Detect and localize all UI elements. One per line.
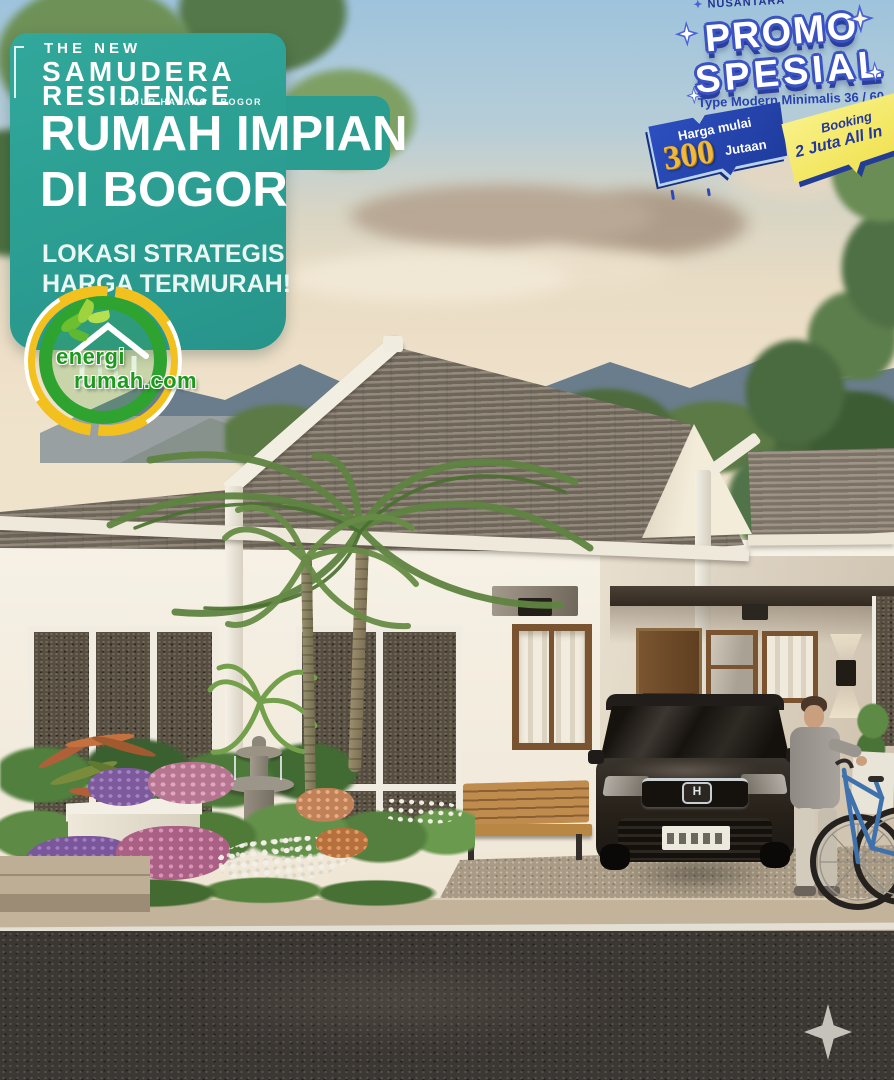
- water-stream: [234, 756, 236, 780]
- leaf: [67, 326, 89, 343]
- palm-frond: [305, 550, 416, 584]
- bike-seat: [868, 776, 884, 782]
- right-wing-roof: [748, 440, 894, 545]
- banner-kicker: THE NEW: [44, 40, 141, 57]
- window-transom: [706, 630, 758, 704]
- banner-tagline-line1: LOKASI STRATEGIS: [42, 240, 285, 269]
- promo-star-core: [679, 25, 694, 42]
- brand-star-icon: ✦: [693, 0, 708, 11]
- promo-star-icon: [674, 20, 699, 47]
- kerb-steps: [0, 856, 150, 912]
- water-stream: [280, 756, 282, 780]
- ridge-top-block: [383, 336, 403, 352]
- car-windshield: [596, 704, 794, 762]
- palm-frond: [228, 560, 305, 625]
- plate-characters: [667, 833, 725, 844]
- bike-handlebar: [836, 761, 852, 768]
- license-plate: [662, 826, 730, 850]
- price-unit: Jutaan: [724, 137, 768, 158]
- person-face: [804, 705, 824, 728]
- palm-tree-medium: [220, 498, 420, 663]
- banner-corner-accent: [14, 46, 24, 98]
- brand-partial-text: NUSANTARA: [707, 0, 785, 11]
- window-right: [762, 631, 818, 703]
- car-mirror: [588, 750, 604, 764]
- bench: [460, 782, 592, 862]
- energirumah-logo: energi rumah.com: [22, 284, 186, 440]
- logo-text-line2: rumah.com: [74, 368, 197, 394]
- banner-headline-line2: DI BOGOR: [40, 162, 288, 218]
- banner-headline-line1: RUMAH IMPIAN: [40, 106, 407, 162]
- car: H: [596, 694, 794, 872]
- logo-leaf-icon: [58, 304, 110, 344]
- palm-frond: [305, 560, 408, 626]
- eave-fascia-right: [748, 533, 894, 545]
- honda-logo-icon: H: [682, 782, 712, 804]
- bench-leg: [576, 834, 582, 860]
- bicycle: [806, 738, 894, 913]
- wall-lamp: [836, 660, 856, 686]
- price-amount: 300: [661, 133, 717, 179]
- fountain-stem: [250, 756, 268, 778]
- porch-beam: [610, 586, 894, 606]
- logo-text-line1: energi: [56, 344, 125, 370]
- bench-backrest: [463, 780, 589, 825]
- porch-vent: [742, 604, 768, 620]
- window-bar: [711, 665, 753, 669]
- road-sheen: [120, 950, 680, 1060]
- car-tire: [600, 844, 630, 870]
- bench-seat: [460, 824, 592, 836]
- flyer-poster: H: [0, 0, 894, 1080]
